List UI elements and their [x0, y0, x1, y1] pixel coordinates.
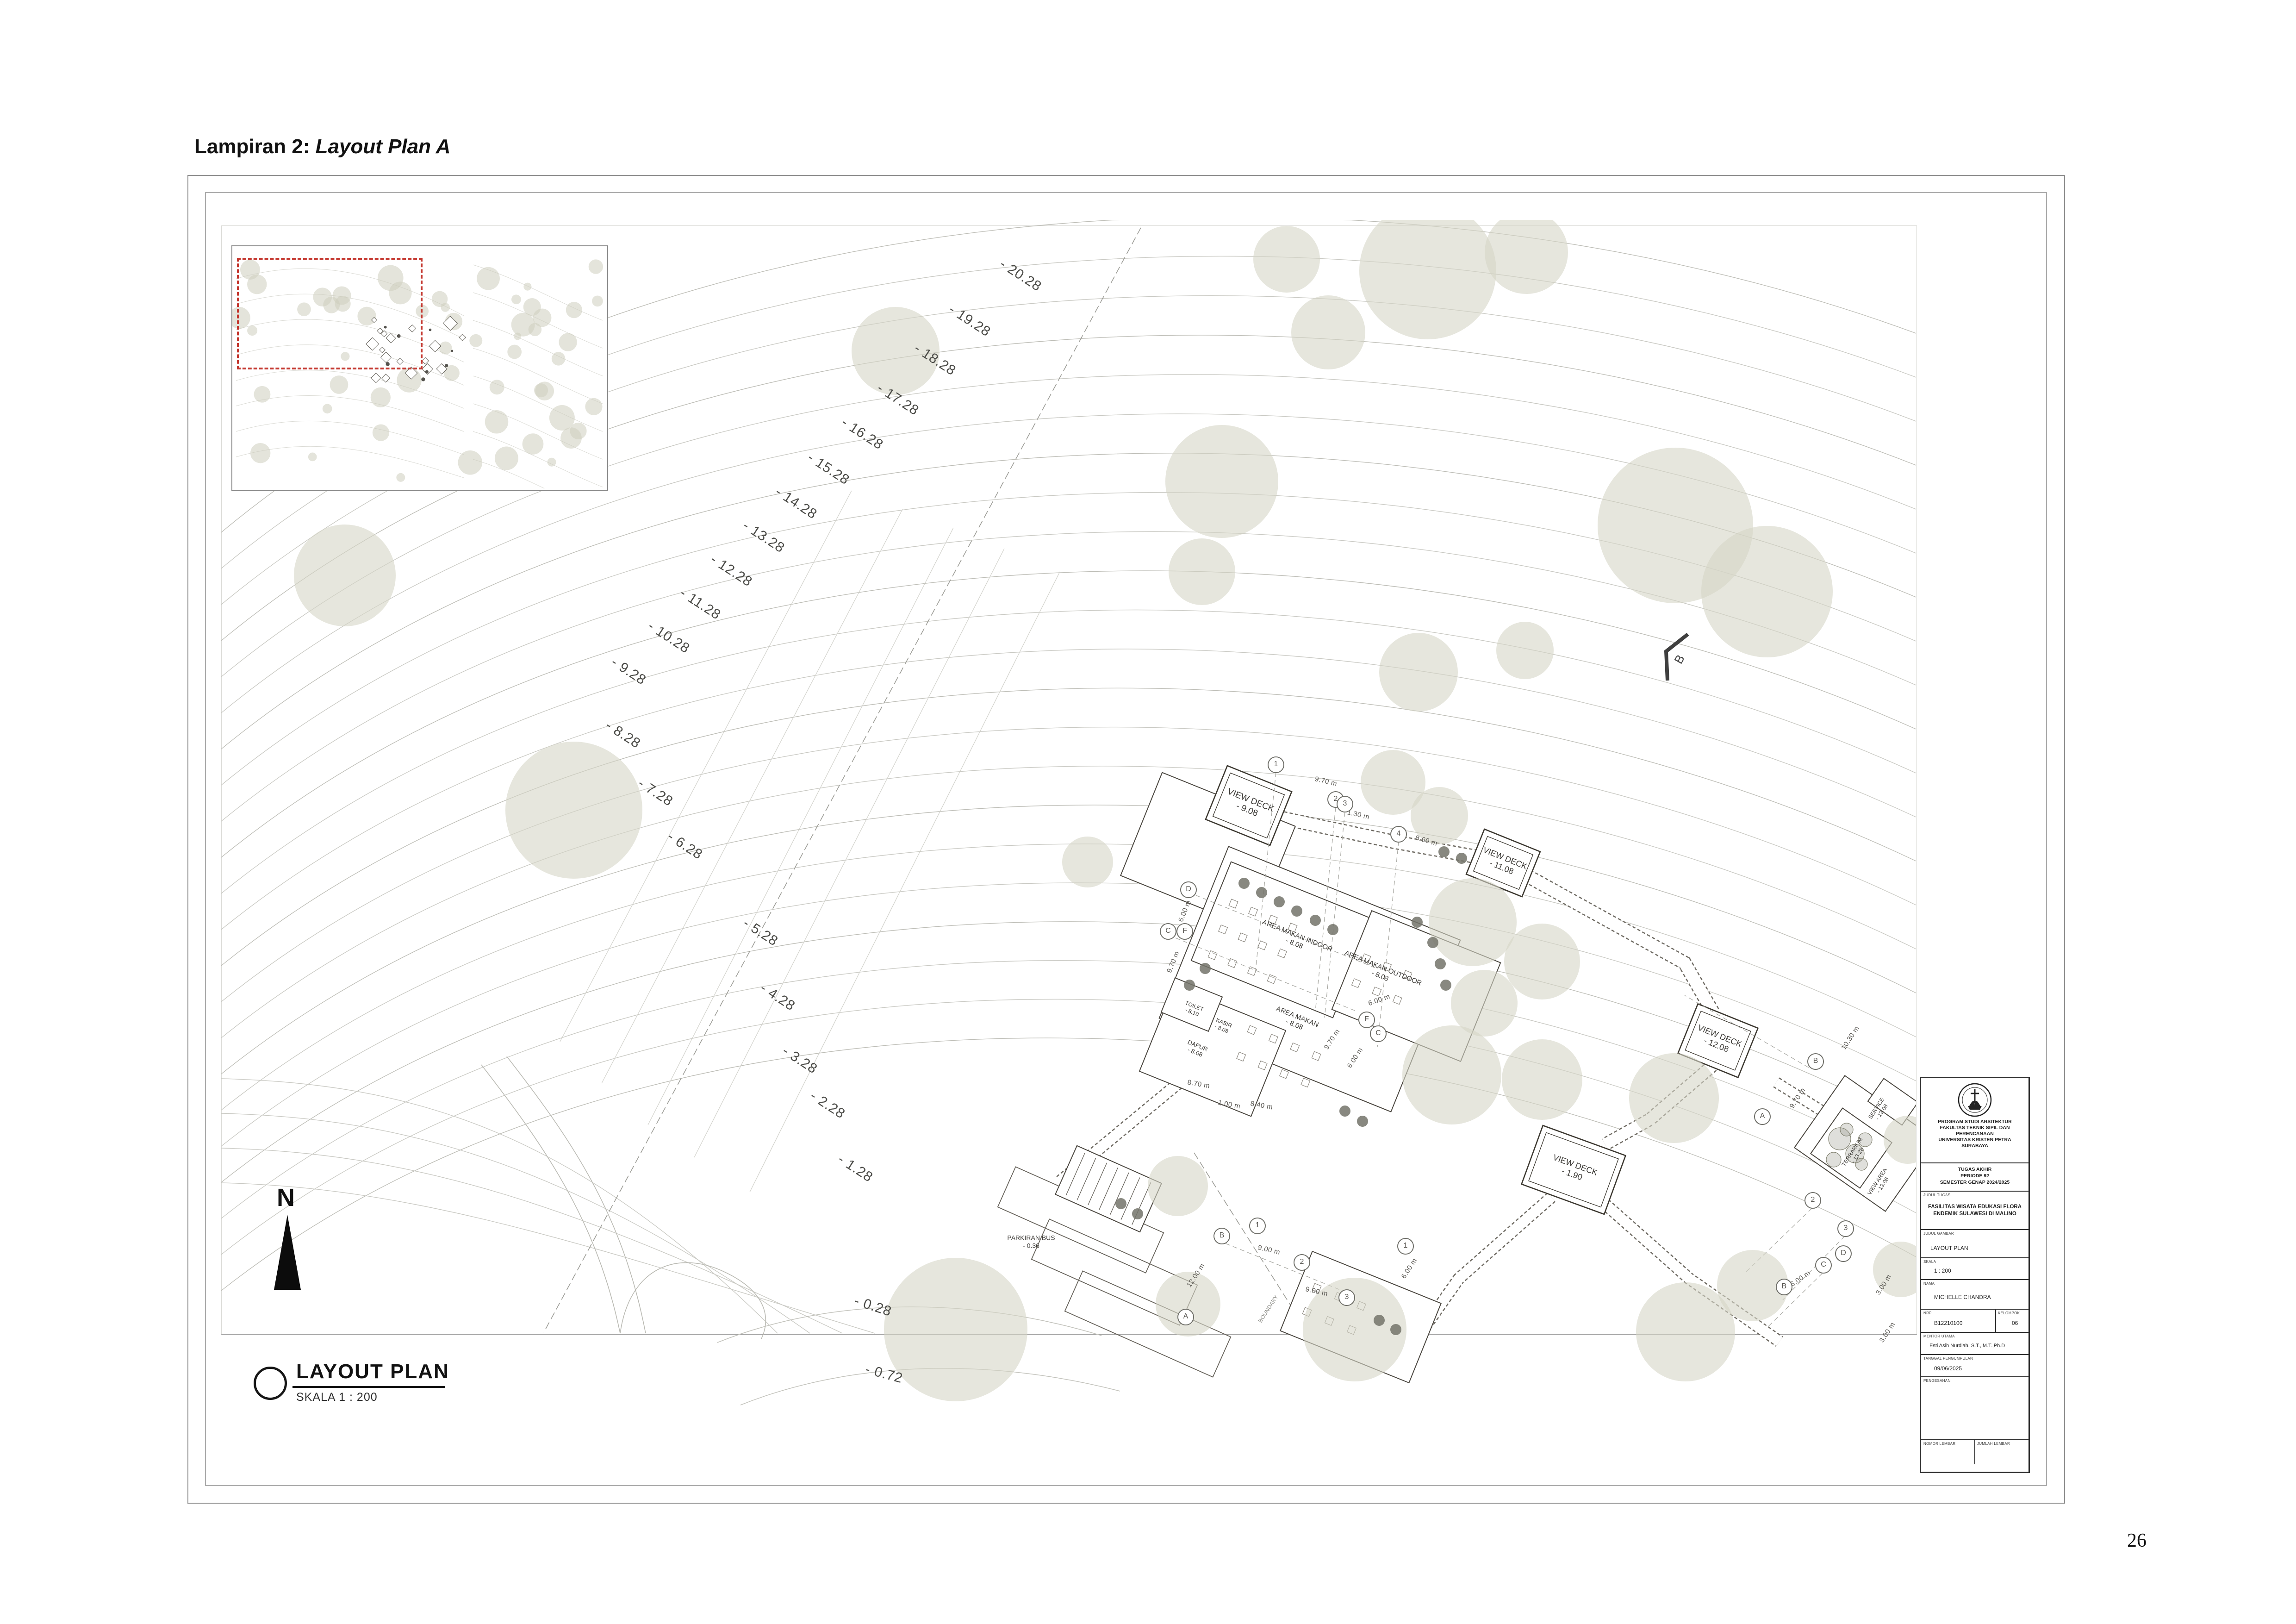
mentor-value: Esti Asih Nurdiah, S.T., M.T.,Ph.D: [1929, 1343, 2028, 1349]
tree: [1504, 924, 1580, 999]
titleblock-tanggal-row: TANGGAL PENGUMPULAN 09/06/2025: [1921, 1355, 2028, 1377]
grid-bubble: F: [1358, 1012, 1375, 1028]
titleblock-pengesahan-row: PENGESAHAN: [1921, 1377, 2028, 1440]
nama-value: MICHELLE CHANDRA: [1934, 1294, 2028, 1300]
boundary-label: BOUNDARY: [1257, 1294, 1280, 1324]
titleblock-project-row: TUGAS AKHIR PERIODE 92 SEMESTER GENAP 20…: [1921, 1163, 2028, 1192]
grid-bubble: 3: [1837, 1220, 1854, 1237]
grid-bubble: C: [1370, 1025, 1387, 1042]
tree: [1429, 878, 1517, 966]
grid-bubble: D: [1835, 1245, 1852, 1262]
judul-tugas-label: JUDUL TUGAS: [1923, 1193, 1950, 1197]
tree: [1502, 1039, 1582, 1120]
grid-bubble: 1: [1397, 1238, 1414, 1255]
shrub: [1132, 1208, 1143, 1219]
document-page: Lampiran 2: Layout Plan A BBOUNDARY - 20…: [0, 0, 2296, 1624]
shrub: [1238, 878, 1250, 889]
key-plan-inset: [231, 245, 608, 491]
judul-gambar-value: LAYOUT PLAN: [1930, 1245, 2028, 1251]
grid-bubble: D: [1180, 881, 1197, 898]
shrub: [1390, 1324, 1401, 1335]
room-label: PARKIRAN BUS- 0.36: [1007, 1234, 1055, 1249]
nama-label: NAMA: [1923, 1281, 1935, 1286]
tanggal-value: 09/06/2025: [1934, 1365, 2028, 1372]
grid-bubble: B: [1213, 1228, 1230, 1244]
titleblock-lembar-row: NOMOR LEMBAR JUMLAH LEMBAR: [1921, 1440, 2028, 1464]
tree: [1485, 211, 1568, 294]
university-line-1: PROGRAM STUDI ARSITEKTUR: [1921, 1119, 2028, 1125]
page-number: 26: [2127, 1530, 2147, 1552]
university-line-2: FAKULTAS TEKNIK SIPIL DAN: [1921, 1125, 2028, 1131]
pengesahan-label: PENGESAHAN: [1923, 1379, 1951, 1383]
judul-gambar-label: JUDUL GAMBAR: [1923, 1231, 1954, 1236]
titleblock-nrp-kelompok-row: NRP B12210100 KELOMPOK 06: [1921, 1310, 2028, 1333]
shrub: [1339, 1106, 1350, 1117]
tree: [505, 742, 642, 879]
mentor-label: MENTOR UTAMA: [1923, 1334, 1955, 1338]
shrub: [1438, 846, 1450, 857]
university-line-5: SURABAYA: [1921, 1143, 2028, 1149]
tree: [1629, 1053, 1719, 1143]
grid-bubble: C: [1815, 1257, 1832, 1274]
tree: [1496, 622, 1554, 679]
north-label: N: [277, 1183, 319, 1212]
grid-bubble: 2: [1804, 1192, 1821, 1209]
tree: [1062, 837, 1113, 887]
shrub: [1412, 917, 1423, 928]
shrub: [1374, 1315, 1385, 1326]
grid-bubble: C: [1160, 923, 1176, 940]
title-block: PROGRAM STUDI ARSITEKTUR FAKULTAS TEKNIK…: [1920, 1077, 2030, 1473]
project-line-2: PERIODE 92: [1921, 1173, 2028, 1179]
north-arrow-icon: [274, 1215, 301, 1290]
tree: [1291, 295, 1365, 369]
grid-bubble: A: [1754, 1108, 1771, 1125]
nrp-label: NRP: [1923, 1311, 1932, 1315]
key-plan-highlight-rectangle: [237, 258, 423, 369]
drawing-title-underline: [292, 1386, 445, 1388]
north-arrow: N: [268, 1183, 319, 1299]
shrub: [1456, 853, 1467, 864]
titleblock-university-row: PROGRAM STUDI ARSITEKTUR FAKULTAS TEKNIK…: [1921, 1078, 2028, 1163]
nomor-lembar-label: NOMOR LEMBAR: [1923, 1442, 1955, 1446]
tree: [294, 525, 396, 626]
grid-bubble: 2: [1294, 1254, 1310, 1271]
project-line-3: SEMESTER GENAP 2024/2025: [1921, 1179, 2028, 1186]
grid-bubble: A: [1177, 1309, 1194, 1325]
shrub: [1115, 1198, 1126, 1209]
jumlah-lembar-label: JUMLAH LEMBAR: [1977, 1442, 2010, 1446]
shrub: [1274, 896, 1285, 907]
shrub: [1200, 963, 1211, 974]
grid-bubble: 4: [1390, 826, 1407, 843]
university-line-3: PERENCANAAN: [1921, 1131, 2028, 1137]
grid-bubble: 1: [1268, 756, 1284, 773]
titleblock-skala-row: SKALA 1 : 200: [1921, 1258, 2028, 1280]
tree: [1402, 1025, 1501, 1124]
shrub: [1357, 1116, 1368, 1127]
grid-bubble: 3: [1338, 1289, 1355, 1306]
lembar-divider: [1974, 1440, 1975, 1464]
titleblock-mentor-row: MENTOR UTAMA Esti Asih Nurdiah, S.T., M.…: [1921, 1333, 2028, 1355]
grid-bubble: 1: [1249, 1218, 1266, 1234]
shrub: [1435, 958, 1446, 969]
shrub: [1310, 915, 1321, 926]
grid-bubble: B: [1807, 1053, 1824, 1070]
university-line-4: UNIVERSITAS KRISTEN PETRA: [1921, 1137, 2028, 1143]
judul-tugas-value-1: FASILITAS WISATA EDUKASI FLORA: [1921, 1204, 2028, 1211]
tree: [1701, 526, 1833, 657]
drawing-title-group: LAYOUT PLAN SKALA 1 : 200: [254, 1360, 494, 1411]
grid-bubble: F: [1176, 923, 1193, 940]
tree: [1165, 425, 1278, 538]
university-logo: [1957, 1082, 1993, 1118]
drawing-title: LAYOUT PLAN: [296, 1360, 449, 1383]
nrp-kelompok-divider: [1995, 1310, 1996, 1332]
grid-bubble: 3: [1337, 796, 1353, 812]
titleblock-nama-row: NAMA MICHELLE CHANDRA: [1921, 1280, 2028, 1310]
skala-label: SKALA: [1923, 1260, 1936, 1264]
shrub: [1327, 924, 1338, 935]
grid-bubble: B: [1776, 1279, 1792, 1295]
titleblock-judul-tugas-row: JUDUL TUGAS FASILITAS WISATA EDUKASI FLO…: [1921, 1192, 2028, 1230]
tree: [884, 1258, 1027, 1401]
section-marker-label: B: [1671, 652, 1687, 666]
tree: [1379, 633, 1458, 712]
shrub: [1256, 887, 1267, 898]
tree: [1359, 202, 1496, 339]
titleblock-judul-gambar-row: JUDUL GAMBAR LAYOUT PLAN: [1921, 1230, 2028, 1258]
shrub: [1184, 980, 1195, 991]
shrub: [1291, 906, 1302, 917]
project-line-1: TUGAS AKHIR: [1921, 1166, 2028, 1173]
kelompok-label: KELOMPOK: [1998, 1311, 2020, 1315]
tree: [1148, 1156, 1208, 1216]
shrub: [1440, 980, 1451, 991]
kelompok-value: 06: [2012, 1320, 2018, 1326]
shrub: [1427, 937, 1438, 948]
judul-tugas-value-2: ENDEMIK SULAWESI DI MALINO: [1921, 1211, 2028, 1218]
skala-value: 1 : 200: [1934, 1268, 2028, 1274]
drawing-scale: SKALA 1 : 200: [296, 1391, 378, 1404]
tree: [1253, 226, 1320, 293]
tree: [1169, 538, 1235, 605]
drawing-title-bullet-icon: [254, 1367, 287, 1400]
tanggal-label: TANGGAL PENGUMPULAN: [1923, 1356, 1973, 1361]
